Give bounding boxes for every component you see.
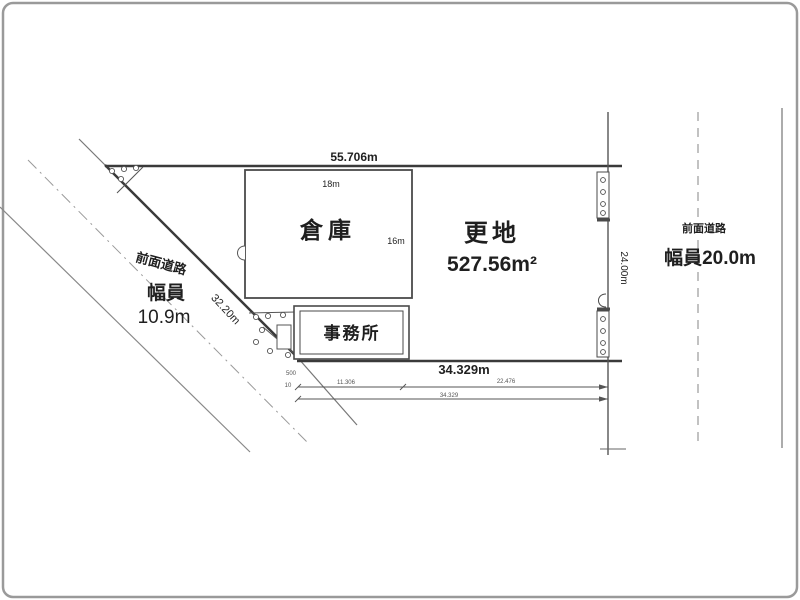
- right-road-width-value: 幅員20.0m: [664, 246, 756, 269]
- left-road-near-edge-lower: [298, 358, 357, 425]
- warehouse: 18m 倉庫 16m: [238, 170, 413, 298]
- warehouse-width-label: 18m: [322, 179, 340, 189]
- corner-markers-top-left: [109, 165, 143, 193]
- dimension-top: 55.706m: [330, 150, 377, 164]
- left-road-far-edge-line: [0, 207, 250, 452]
- image-frame: [3, 3, 797, 597]
- vacant-land-label: 更地: [464, 220, 520, 247]
- dimension-bottom: 34.329m: [438, 362, 489, 377]
- dimension-right: 24.00m: [618, 251, 629, 284]
- sub-dimension-segment2: 22.476: [497, 379, 516, 385]
- block-wall-lower: [597, 309, 610, 357]
- office-label: 事務所: [324, 323, 381, 343]
- warehouse-label: 倉庫: [299, 217, 356, 243]
- left-road-near-edge-upper: [79, 139, 105, 165]
- block-wall-upper: [597, 172, 610, 220]
- sub-dimension-total: 34.329: [440, 393, 459, 399]
- right-road-name: 前面道路: [682, 221, 727, 235]
- gate-hook-symbol: [599, 294, 607, 307]
- vacant-land: 更地 527.56m²: [447, 220, 537, 276]
- office: 事務所: [294, 306, 409, 359]
- site-plan-image: 18m 倉庫 16m 事務所 更地 527.56m² 55.706m 34.32…: [0, 0, 800, 600]
- left-road-width-label: 幅員: [147, 281, 185, 304]
- sub-dimension-tick-b: 10: [285, 383, 292, 389]
- vacant-land-area: 527.56m²: [447, 253, 537, 276]
- sub-dimension-tick-a: 500: [286, 371, 297, 377]
- corner-markers-bottom-left: [249, 312, 296, 358]
- site-plan-canvas: 18m 倉庫 16m 事務所 更地 527.56m² 55.706m 34.32…: [0, 0, 800, 600]
- left-road-width-value: 10.9m: [138, 307, 191, 328]
- warehouse-depth-label: 16m: [387, 236, 405, 246]
- left-road-name: 前面道路: [134, 250, 189, 278]
- sub-dimension-segment1: 11.306: [337, 380, 356, 386]
- warehouse-door-symbol: [238, 246, 246, 260]
